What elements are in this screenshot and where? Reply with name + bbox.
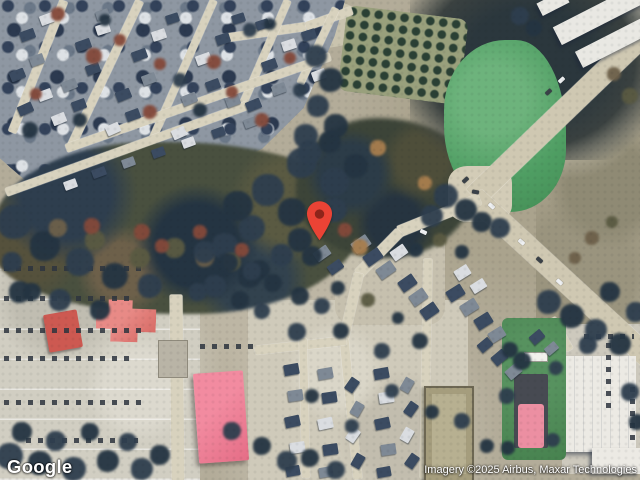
tree <box>425 405 439 419</box>
tree <box>73 113 87 127</box>
tree <box>421 205 443 227</box>
tree <box>173 73 187 87</box>
tree <box>409 243 423 257</box>
tree <box>204 275 226 297</box>
tree <box>546 433 560 447</box>
tree <box>49 289 71 311</box>
house-roof <box>321 391 337 404</box>
tree <box>345 419 359 433</box>
tree <box>480 439 494 453</box>
tree <box>193 225 207 239</box>
parking-car-row <box>4 400 146 405</box>
house-roof <box>287 389 303 402</box>
tree <box>607 67 621 81</box>
tree <box>305 389 319 403</box>
tree <box>433 233 447 247</box>
tree <box>385 384 399 398</box>
house-roof <box>322 443 338 456</box>
tree <box>51 7 65 21</box>
tree <box>626 302 640 322</box>
tree <box>585 231 599 245</box>
tree <box>472 212 492 232</box>
road-segment <box>170 294 185 480</box>
tree <box>418 176 432 190</box>
tree <box>609 333 631 355</box>
pink-roof-building-large <box>193 370 249 463</box>
lawn-building-pink-roof <box>518 404 544 448</box>
tree <box>193 103 207 117</box>
parking-car-row <box>4 328 142 333</box>
tree <box>606 216 618 228</box>
tree <box>361 293 375 307</box>
tree <box>194 241 216 263</box>
tree <box>131 458 153 480</box>
parking-car-row <box>4 356 136 361</box>
location-marker-pin[interactable] <box>306 200 333 241</box>
tree <box>319 68 343 92</box>
tree <box>143 105 157 119</box>
tree <box>114 34 126 46</box>
marker-pin-body <box>307 201 332 240</box>
house-roof <box>473 311 494 330</box>
tree <box>226 86 238 98</box>
tree <box>99 14 111 26</box>
tree <box>307 95 329 117</box>
tree <box>284 52 296 64</box>
tree <box>154 58 166 70</box>
map-canvas[interactable]: Google Imagery ©2025 Airbus, Maxar Techn… <box>0 0 640 480</box>
house-roof <box>453 264 472 281</box>
parking-car-row <box>200 344 254 349</box>
attribution-text: Imagery ©2025 Airbus, Maxar Technologies <box>424 464 637 476</box>
tree <box>629 414 640 430</box>
marker-pin-dot <box>315 209 324 218</box>
tree <box>30 88 42 100</box>
tree <box>569 252 581 264</box>
tree <box>293 83 307 97</box>
tree <box>235 243 249 257</box>
tree <box>97 450 119 472</box>
tree <box>549 361 563 375</box>
house-roof <box>469 278 487 294</box>
white-roof-building <box>556 356 636 452</box>
tree <box>243 23 257 37</box>
tree <box>305 45 327 67</box>
tree <box>264 18 276 30</box>
tree <box>207 55 221 69</box>
tree <box>392 312 404 324</box>
tree <box>155 239 169 253</box>
tree <box>271 244 293 266</box>
gray-building <box>158 340 188 378</box>
google-logo[interactable]: Google <box>7 456 73 478</box>
tree <box>255 113 269 127</box>
tree <box>331 281 345 295</box>
tree <box>455 245 469 259</box>
tree <box>501 441 515 455</box>
tree <box>338 223 352 237</box>
house-roof <box>380 443 396 456</box>
